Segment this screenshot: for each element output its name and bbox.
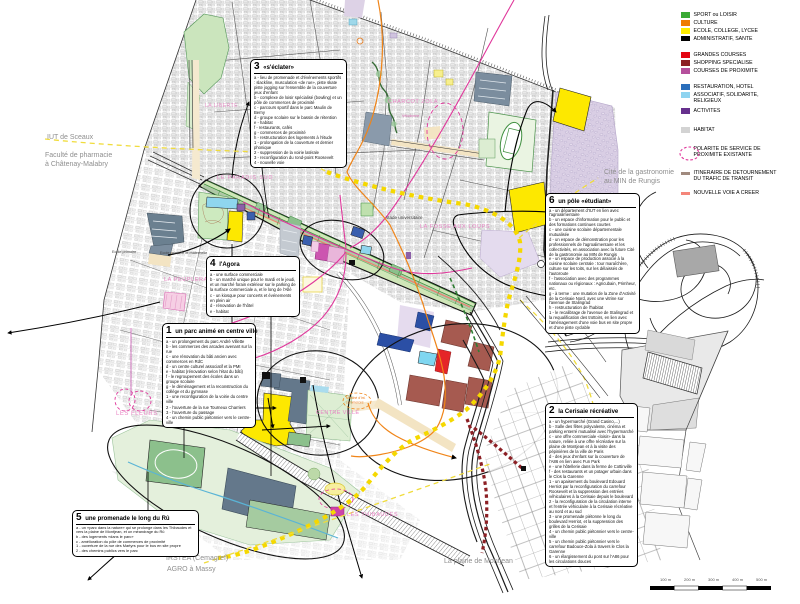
svg-text:Vélodrome: Vélodrome: [402, 114, 419, 118]
svg-text:Marché d'Int.: Marché d'Int.: [346, 396, 366, 400]
svg-text:stade universitaire: stade universitaire: [386, 215, 423, 220]
svg-text:Ecole primaire: Ecole primaire: [112, 250, 136, 254]
svg-text:500 m: 500 m: [756, 577, 768, 582]
svg-text:300 m: 300 m: [708, 577, 720, 582]
svg-text:Ecole primaire et maternelle: Ecole primaire et maternelle: [160, 251, 207, 255]
svg-text:100 m: 100 m: [660, 577, 672, 582]
svg-text:200 m: 200 m: [684, 577, 696, 582]
svg-text:commerces: commerces: [346, 401, 364, 405]
svg-text:400 m: 400 m: [732, 577, 744, 582]
